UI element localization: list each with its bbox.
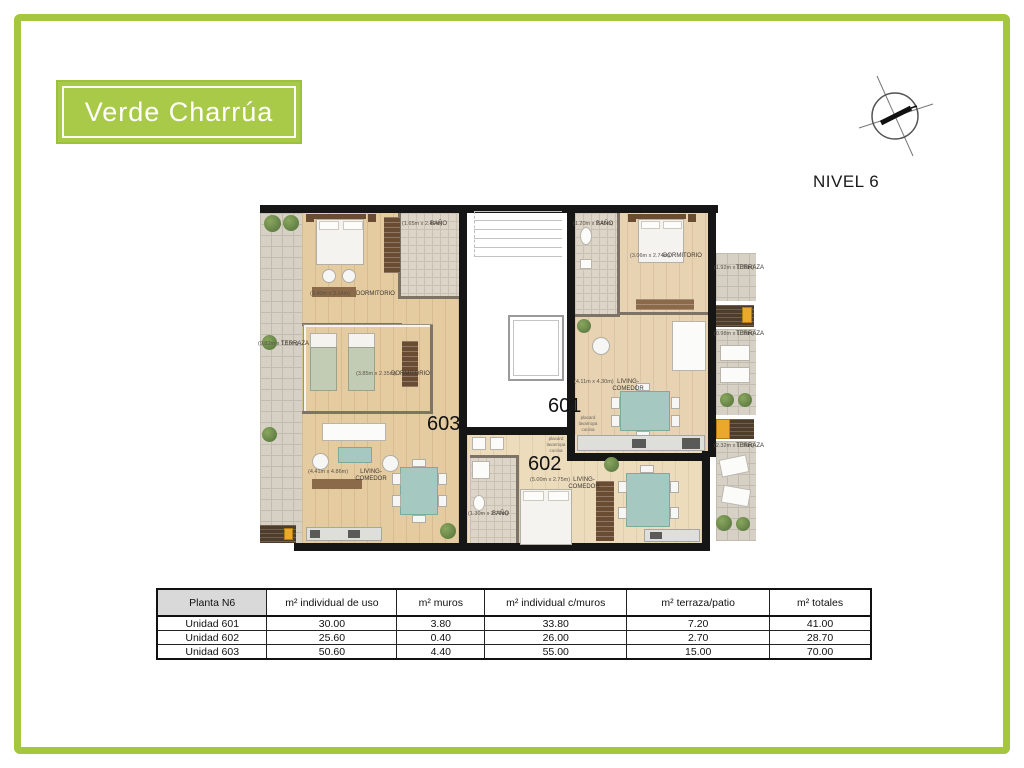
pouf <box>322 269 336 283</box>
plant <box>736 517 750 531</box>
toilet <box>473 495 485 511</box>
elevator <box>508 315 564 381</box>
partition <box>617 213 620 317</box>
cell: 25.60 <box>267 631 397 645</box>
chair <box>671 415 680 427</box>
chair <box>392 495 401 507</box>
unit-number-602: 602 <box>528 453 561 476</box>
chair <box>438 473 447 485</box>
chair <box>670 481 679 493</box>
floor-plan: TERRAZA(9.82m x 1.15m) DORMITORIO(3.40m … <box>252 195 768 571</box>
pillow <box>523 491 544 501</box>
dresser <box>636 299 694 310</box>
chair <box>671 397 680 409</box>
cell: 7.20 <box>627 616 770 631</box>
cell: 26.00 <box>485 631 627 645</box>
sink <box>580 259 592 269</box>
cell: 28.70 <box>770 631 871 645</box>
plant <box>604 457 619 472</box>
chair <box>618 507 627 519</box>
cell: 33.80 <box>485 616 627 631</box>
wardrobe <box>384 217 400 273</box>
wall <box>294 543 710 551</box>
chair <box>611 415 620 427</box>
chair <box>640 465 654 473</box>
brand-logo: Verde Charrúa <box>56 80 302 144</box>
partition <box>470 455 519 458</box>
plant <box>440 523 456 539</box>
terrace-r1-floor <box>716 253 756 301</box>
bed-cover <box>348 347 375 391</box>
chair <box>438 495 447 507</box>
cell: 70.00 <box>770 645 871 660</box>
terrace-bench <box>730 419 754 439</box>
cell: 41.00 <box>770 616 871 631</box>
laundry <box>472 437 486 450</box>
plant <box>716 515 732 531</box>
plant <box>283 215 299 231</box>
cell: Unidad 602 <box>157 631 267 645</box>
sink <box>348 530 360 538</box>
wall <box>459 427 575 435</box>
chair <box>412 459 426 467</box>
bed-cover <box>310 347 337 391</box>
table-row-603: Unidad 603 50.60 4.40 55.00 15.00 70.00 <box>157 645 871 660</box>
sink <box>650 532 662 539</box>
cell: Unidad 601 <box>157 616 267 631</box>
brand-name: Verde Charrúa <box>85 97 274 128</box>
cell: 3.80 <box>397 616 485 631</box>
cell: 2.70 <box>627 631 770 645</box>
lounge-chair <box>720 345 750 361</box>
sofa <box>672 321 706 371</box>
nightstand <box>688 214 696 222</box>
lounge-cushion <box>742 307 752 323</box>
cell: 15.00 <box>627 645 770 660</box>
partition <box>617 312 708 315</box>
chair <box>618 481 627 493</box>
laundry <box>490 437 504 450</box>
partition <box>398 296 459 299</box>
header-muros: m² muros <box>397 589 485 616</box>
cell: 55.00 <box>485 645 627 660</box>
coffee-table <box>338 447 372 463</box>
header-totales: m² totales <box>770 589 871 616</box>
sofa <box>322 423 386 441</box>
table-row-602: Unidad 602 25.60 0.40 26.00 2.70 28.70 <box>157 631 871 645</box>
stove <box>310 530 320 538</box>
pillow <box>663 221 682 229</box>
armchair <box>592 337 610 355</box>
plant <box>738 393 752 407</box>
north-compass-icon <box>853 70 937 162</box>
plant <box>262 427 277 442</box>
wall <box>567 453 710 461</box>
partition <box>575 314 620 317</box>
cell: 30.00 <box>267 616 397 631</box>
shower <box>472 461 490 479</box>
partition <box>516 457 519 543</box>
wall <box>702 451 710 549</box>
unit-number-601: 601 <box>548 395 581 418</box>
plant <box>264 215 281 232</box>
toilet <box>580 227 592 245</box>
header-terraza-patio: m² terraza/patio <box>627 589 770 616</box>
cell: 0.40 <box>397 631 485 645</box>
brochure-page: { "brand": {"name": "Verde Charrúa"}, "p… <box>0 0 1024 768</box>
areas-table: Planta N6 m² individual de uso m² muros … <box>156 588 872 660</box>
pillow <box>343 221 363 230</box>
header-planta: Planta N6 <box>157 589 267 616</box>
placard-note-602: placard lavarropa cocina <box>540 436 572 454</box>
partition <box>302 411 433 414</box>
wall <box>459 435 467 547</box>
nightstand <box>368 214 376 222</box>
dining-table <box>626 473 670 527</box>
nightstand <box>306 214 314 222</box>
pillow <box>319 221 339 230</box>
chair <box>611 397 620 409</box>
nightstand <box>628 214 636 222</box>
table-row-601: Unidad 601 30.00 3.80 33.80 7.20 41.00 <box>157 616 871 631</box>
chair <box>412 515 426 523</box>
wardrobe <box>402 341 418 387</box>
dining-table <box>620 391 670 431</box>
cell: 50.60 <box>267 645 397 660</box>
lounge-chair <box>720 367 750 383</box>
pouf <box>342 269 356 283</box>
plant <box>577 319 591 333</box>
stairs <box>474 211 562 257</box>
lounge-cushion <box>284 528 293 540</box>
stove <box>682 438 700 449</box>
header-individual-uso: m² individual de uso <box>267 589 397 616</box>
pillow <box>548 491 569 501</box>
level-label: NIVEL 6 <box>813 172 879 192</box>
pillow <box>641 221 660 229</box>
unit-number-603: 603 <box>427 413 460 436</box>
header-individual-cmuros: m² individual c/muros <box>485 589 627 616</box>
dining-table <box>400 467 438 515</box>
partition <box>430 325 433 413</box>
chair <box>670 507 679 519</box>
cell: Unidad 603 <box>157 645 267 660</box>
terrace-left-floor <box>260 213 302 543</box>
table-header-row: Planta N6 m² individual de uso m² muros … <box>157 589 871 616</box>
armchair <box>312 453 329 470</box>
lounge-cushion <box>716 419 730 439</box>
sink <box>632 439 646 448</box>
chair <box>392 473 401 485</box>
plant <box>720 393 734 407</box>
wall <box>459 205 467 435</box>
cell: 4.40 <box>397 645 485 660</box>
